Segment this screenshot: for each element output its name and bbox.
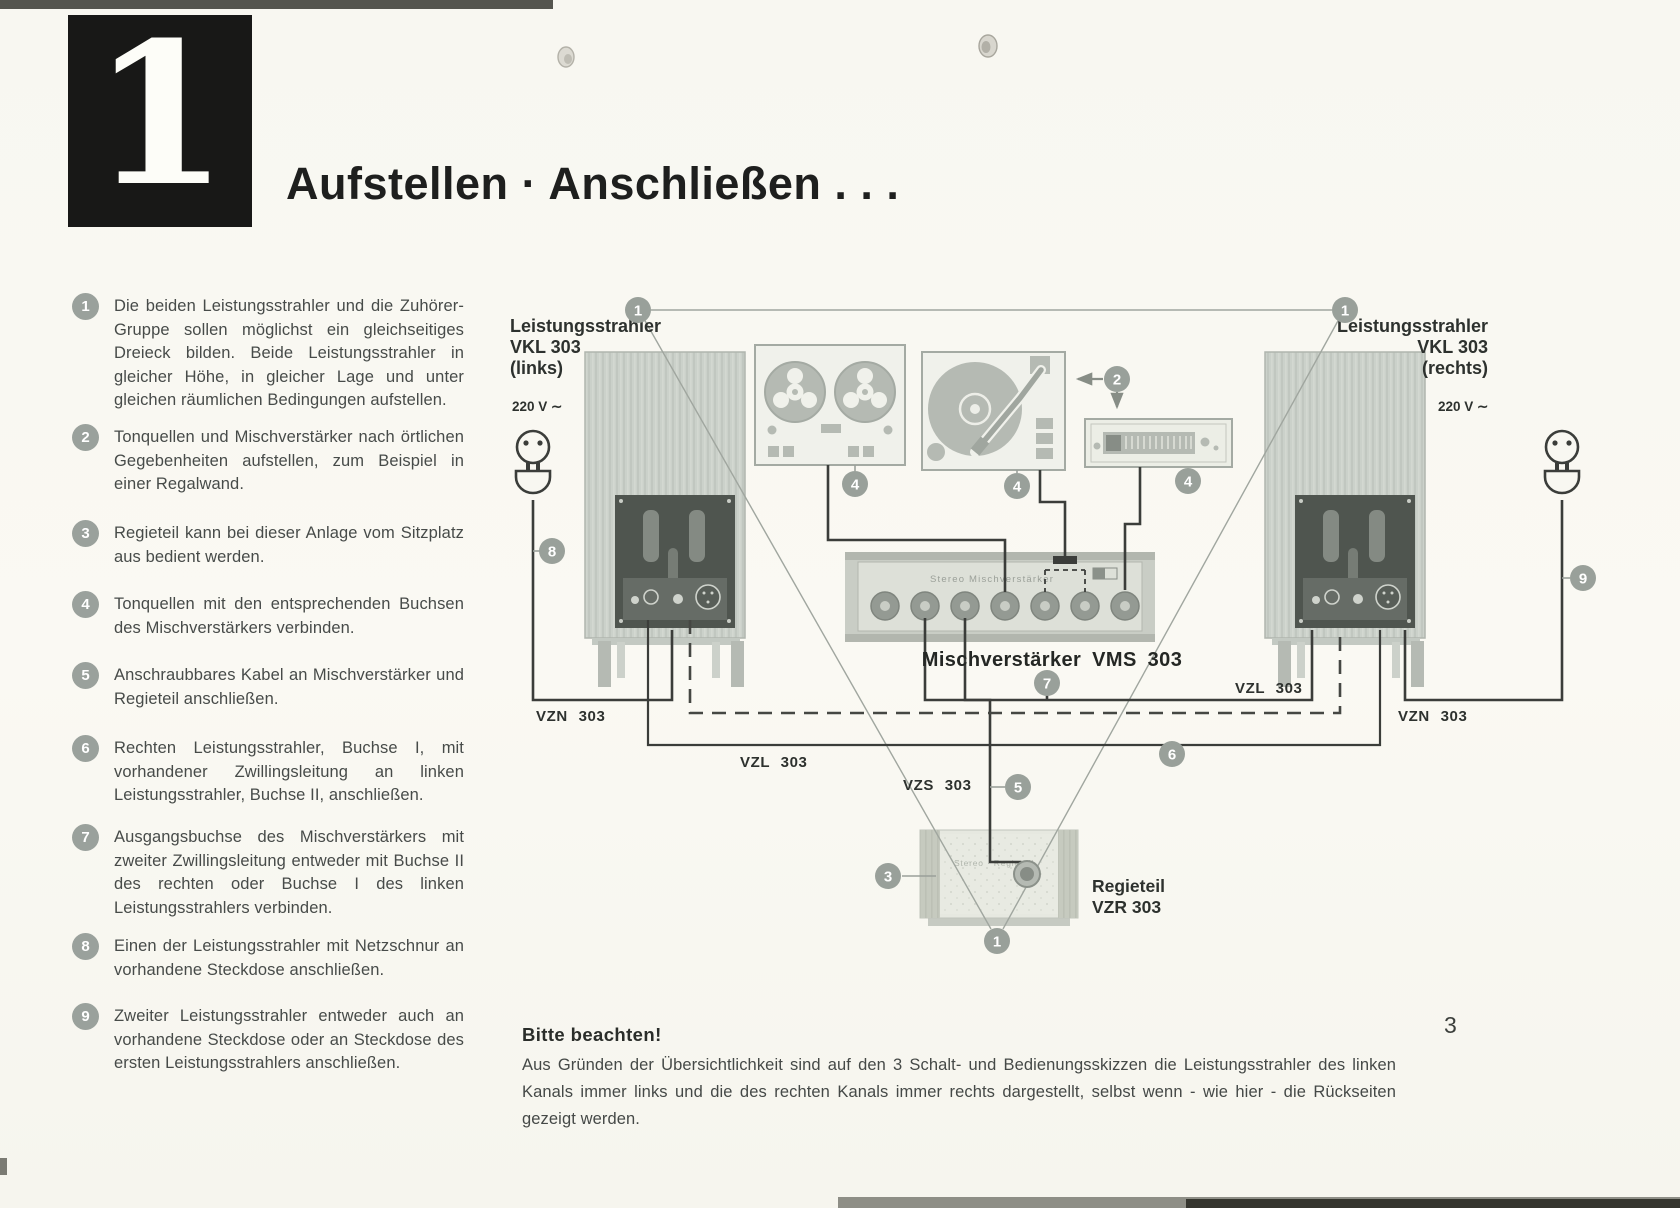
marker-1-bottom: 1 <box>984 928 1010 954</box>
control-unit-label: Regieteil <box>1092 876 1165 896</box>
voltage-label-left: 220 V ∼ <box>512 399 562 414</box>
tuner <box>1085 419 1232 467</box>
svg-text:8: 8 <box>548 544 556 561</box>
note-body: Aus Gründen der Übersichtlichkeit sind a… <box>522 1052 1396 1133</box>
cable-label-vzl-center: VZL 303 <box>740 754 807 771</box>
cable-label-vzn-right: VZN 303 <box>1398 708 1467 725</box>
mixer-label: Mischverstärker VMS 303 <box>922 649 1182 671</box>
svg-text:2: 2 <box>1113 372 1121 389</box>
marker-8: 8 <box>539 538 565 564</box>
svg-text:1: 1 <box>634 303 642 320</box>
chapter-number-box: 1 <box>68 15 252 227</box>
instruction-text: Die beiden Leistungsstrahler und die Zuh… <box>114 293 464 413</box>
page-number: 3 <box>1444 1012 1457 1039</box>
marker-1-left: 1 <box>625 297 651 323</box>
left-speaker-label: (links) <box>510 358 563 378</box>
marker-4-turntable: 4 <box>1004 473 1030 499</box>
note-heading: Bitte beachten! <box>522 1024 662 1046</box>
marker-6: 6 <box>1159 741 1185 767</box>
marker-3: 3 <box>875 863 901 889</box>
manual-page: Stereo Mischverstärker Stereo · Regietei… <box>0 0 1680 1208</box>
instruction-item: 4 Tonquellen mit den entsprechenden Buch… <box>72 591 472 640</box>
step-number-badge: 5 <box>72 662 99 689</box>
instruction-text: Anschraubbares Kabel an Mischverstärker … <box>114 662 464 711</box>
control-unit: Stereo · Regieteil <box>920 830 1078 926</box>
punch-hole-icon <box>979 35 997 57</box>
step-number-badge: 7 <box>72 824 99 851</box>
instruction-item: 2 Tonquellen und Mischverstärker nach ör… <box>72 424 472 497</box>
punch-hole-icon <box>558 47 574 67</box>
svg-text:4: 4 <box>1184 474 1193 491</box>
instruction-item: 1 Die beiden Leistungsstrahler und die Z… <box>72 293 472 413</box>
svg-text:9: 9 <box>1579 571 1587 588</box>
cable-label-vzn-left: VZN 303 <box>536 708 605 725</box>
instruction-item: 5 Anschraubbares Kabel an Mischverstärke… <box>72 662 472 711</box>
instruction-item: 3 Regieteil kann bei dieser Anlage vom S… <box>72 520 472 569</box>
step-number-badge: 3 <box>72 520 99 547</box>
svg-text:7: 7 <box>1043 676 1051 693</box>
left-speaker-label: VKL 303 <box>510 337 581 357</box>
turntable <box>922 352 1065 470</box>
marker-4-tape: 4 <box>842 471 868 497</box>
chapter-number: 1 <box>92 17 228 213</box>
step-number-badge: 4 <box>72 591 99 618</box>
mains-plug-right-icon <box>1545 431 1579 493</box>
svg-text:1: 1 <box>993 934 1001 951</box>
svg-text:4: 4 <box>1013 479 1022 496</box>
svg-text:3: 3 <box>884 869 892 886</box>
instruction-text: Tonquellen und Mischverstärker nach örtl… <box>114 424 464 497</box>
page-title: Aufstellen · Anschließen . . . <box>286 158 899 210</box>
instruction-text: Zweiter Leistungsstrahler entweder auch … <box>114 1003 464 1076</box>
right-speaker <box>1265 352 1425 687</box>
instruction-text: Regieteil kann bei dieser Anlage vom Sit… <box>114 520 464 569</box>
step-number-badge: 6 <box>72 735 99 762</box>
marker-7: 7 <box>1034 670 1060 696</box>
instruction-text: Ausgangsbuchse des Mischverstärkers mit … <box>114 824 464 920</box>
instruction-item: 9 Zweiter Leistungsstrahler entweder auc… <box>72 1003 472 1076</box>
right-speaker-label: (rechts) <box>1422 358 1488 378</box>
tape-recorder <box>755 345 905 465</box>
left-speaker <box>585 352 745 687</box>
step-number-badge: 1 <box>72 293 99 320</box>
step-number-badge: 2 <box>72 424 99 451</box>
marker-2: 2 <box>1104 366 1130 392</box>
instruction-item: 7 Ausgangsbuchse des Mischverstärkers mi… <box>72 824 472 920</box>
instruction-text: Rechten Leistungsstrahler, Buchse I, mit… <box>114 735 464 808</box>
marker-9: 9 <box>1570 565 1596 591</box>
svg-text:5: 5 <box>1014 780 1022 797</box>
instruction-item: 8 Einen der Leistungsstrahler mit Netzsc… <box>72 933 472 982</box>
mixer-panel-text: Stereo Mischverstärker <box>930 574 1054 585</box>
step-number-badge: 9 <box>72 1003 99 1030</box>
right-speaker-label: VKL 303 <box>1417 337 1488 357</box>
mixer-amplifier: Stereo Mischverstärker <box>845 552 1155 642</box>
mains-plug-left-icon <box>516 431 550 493</box>
instruction-text: Einen der Leistungsstrahler mit Netzschn… <box>114 933 464 982</box>
volume-knob <box>1014 861 1040 887</box>
svg-text:1: 1 <box>1341 303 1349 320</box>
svg-text:4: 4 <box>851 477 860 494</box>
cable-label-vzl-right: VZL 303 <box>1235 680 1302 697</box>
svg-text:6: 6 <box>1168 747 1176 764</box>
instruction-text: Tonquellen mit den entsprechenden Buchse… <box>114 591 464 640</box>
marker-4-tuner: 4 <box>1175 468 1201 494</box>
instruction-item: 6 Rechten Leistungsstrahler, Buchse I, m… <box>72 735 472 808</box>
marker-5: 5 <box>1005 774 1031 800</box>
cable-label-vzs: VZS 303 <box>903 777 972 794</box>
control-unit-label: VZR 303 <box>1092 897 1161 917</box>
right-speaker-label: Leistungsstrahler <box>1337 316 1488 336</box>
marker-1-right: 1 <box>1332 297 1358 323</box>
voltage-label-right: 220 V ∼ <box>1438 399 1488 414</box>
step-number-badge: 8 <box>72 933 99 960</box>
